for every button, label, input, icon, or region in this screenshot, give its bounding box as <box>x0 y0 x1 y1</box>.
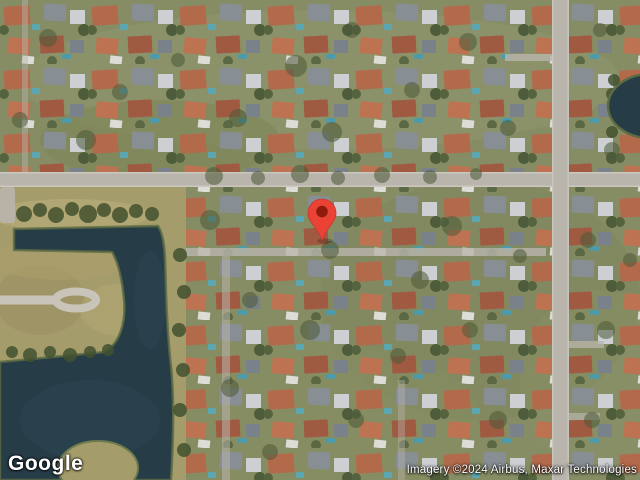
satellite-imagery <box>0 0 640 480</box>
pin-dot <box>316 206 328 218</box>
map-viewport[interactable]: Google Imagery ©2024 Airbus, Maxar Techn… <box>0 0 640 480</box>
google-logo[interactable]: Google <box>8 452 83 476</box>
attribution-text: Imagery ©2024 Airbus, Maxar Technologies <box>407 464 637 476</box>
pin-shadow <box>317 238 333 243</box>
